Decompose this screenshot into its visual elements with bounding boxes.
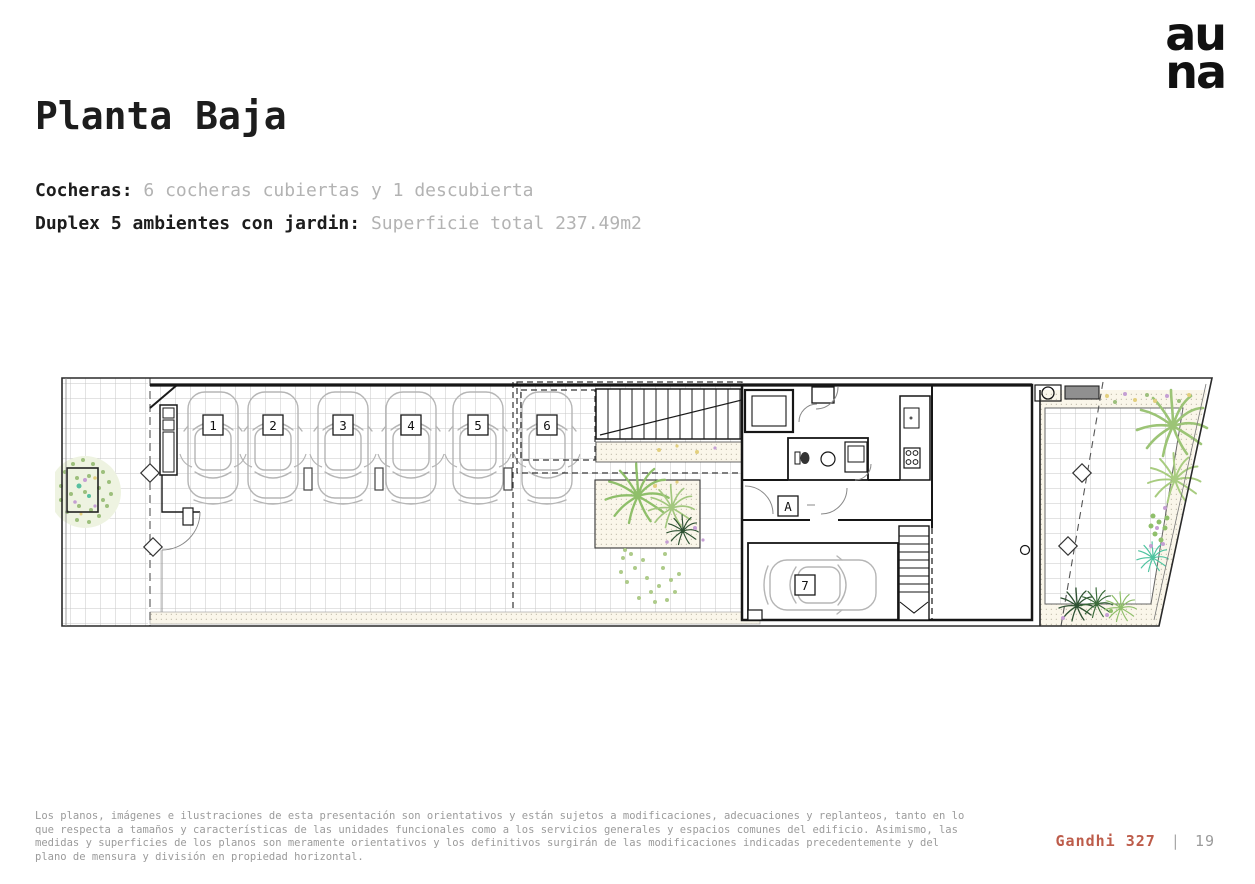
page-title: Planta Baja xyxy=(35,94,287,138)
page-footer: Gandhi 327 | 19 xyxy=(1056,832,1215,850)
stall-label-7: 7 xyxy=(801,578,809,593)
spec-duplex: Duplex 5 ambientes con jardin: Superfici… xyxy=(35,213,642,234)
floor-plan-drawing: 1 2 3 4 5 6 xyxy=(55,368,1215,640)
stall-7-label: 7 xyxy=(795,575,815,595)
spec-duplex-label: Duplex 5 ambientes con jardin: xyxy=(35,213,360,234)
auna-logo: au na xyxy=(1165,16,1225,91)
unit-label-text: A xyxy=(784,499,792,514)
spec-duplex-value: Superficie total 237.49m2 xyxy=(371,213,642,234)
spec-cocheras: Cocheras: 6 cocheras cubiertas y 1 descu… xyxy=(35,180,534,201)
interior-staircase xyxy=(899,526,929,620)
spec-cocheras-value: 6 cocheras cubiertas y 1 descubierta xyxy=(143,180,533,201)
stall-label-1: 1 xyxy=(209,418,217,433)
footer-separator: | xyxy=(1165,832,1186,850)
presentation-slide: au na Planta Baja Cocheras: 6 cocheras c… xyxy=(0,0,1255,884)
logo-line-2: na xyxy=(1165,54,1225,92)
spec-cocheras-label: Cocheras: xyxy=(35,180,133,201)
project-name: Gandhi 327 xyxy=(1056,832,1156,850)
floor-plan: 1 2 3 4 5 6 xyxy=(55,368,1215,640)
stall-label-5: 5 xyxy=(474,418,482,433)
stall-label-6: 6 xyxy=(543,418,551,433)
garden xyxy=(1040,382,1207,626)
stall-label-2: 2 xyxy=(269,418,277,433)
stall-label-4: 4 xyxy=(407,418,415,433)
legal-disclaimer: Los planos, imágenes e ilustraciones de … xyxy=(35,810,965,865)
stall-label-3: 3 xyxy=(339,418,347,433)
page-number: 19 xyxy=(1195,832,1215,850)
